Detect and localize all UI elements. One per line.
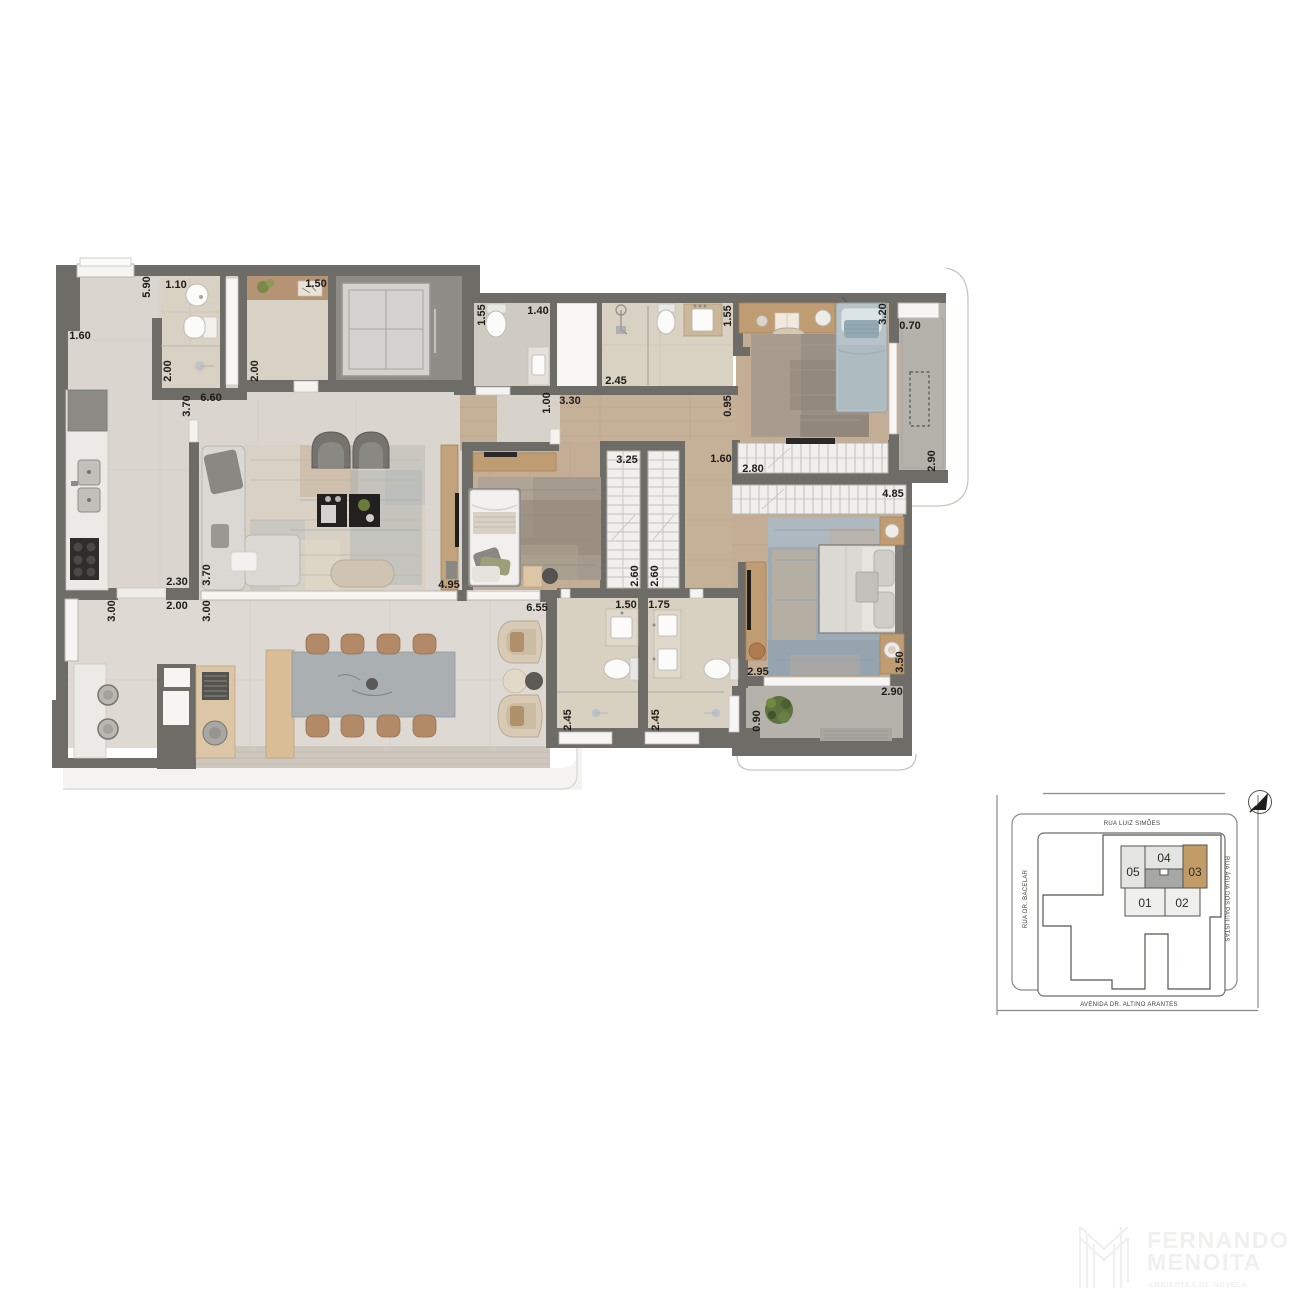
svg-text:1.50: 1.50 bbox=[305, 278, 326, 290]
svg-text:1.60: 1.60 bbox=[69, 330, 90, 342]
svg-text:2.00: 2.00 bbox=[249, 360, 261, 381]
svg-text:0.70: 0.70 bbox=[899, 320, 920, 332]
svg-text:1.55: 1.55 bbox=[476, 304, 488, 325]
svg-text:04: 04 bbox=[1157, 851, 1171, 865]
svg-text:2.45: 2.45 bbox=[605, 375, 626, 387]
svg-text:01: 01 bbox=[1138, 896, 1152, 910]
svg-text:2.80: 2.80 bbox=[742, 463, 763, 475]
svg-text:1.00: 1.00 bbox=[541, 392, 553, 413]
svg-text:3.00: 3.00 bbox=[201, 600, 213, 621]
svg-text:2.45: 2.45 bbox=[562, 709, 574, 730]
svg-text:2.95: 2.95 bbox=[747, 666, 768, 678]
svg-text:0.90: 0.90 bbox=[751, 710, 763, 731]
svg-text:6.55: 6.55 bbox=[526, 602, 547, 614]
svg-text:1.40: 1.40 bbox=[527, 305, 548, 317]
svg-text:1.75: 1.75 bbox=[648, 599, 669, 611]
svg-text:0.95: 0.95 bbox=[722, 395, 734, 416]
svg-text:1.50: 1.50 bbox=[615, 599, 636, 611]
svg-text:RUA ÁGUA DOS PAULISTAS: RUA ÁGUA DOS PAULISTAS bbox=[1223, 856, 1230, 942]
svg-text:4.95: 4.95 bbox=[438, 579, 459, 591]
svg-text:3.20: 3.20 bbox=[877, 303, 889, 324]
svg-text:2.60: 2.60 bbox=[629, 565, 641, 586]
svg-text:AMBIENTES DE NOVELA: AMBIENTES DE NOVELA bbox=[1148, 1282, 1247, 1289]
svg-text:2.90: 2.90 bbox=[926, 450, 938, 471]
svg-text:03: 03 bbox=[1188, 865, 1202, 879]
svg-text:2.60: 2.60 bbox=[649, 565, 661, 586]
svg-text:2.45: 2.45 bbox=[650, 709, 662, 730]
svg-text:1.60: 1.60 bbox=[710, 453, 731, 465]
svg-text:1.55: 1.55 bbox=[722, 305, 734, 326]
svg-text:6.60: 6.60 bbox=[200, 392, 221, 404]
svg-text:2.00: 2.00 bbox=[162, 360, 174, 381]
svg-text:1.10: 1.10 bbox=[165, 279, 186, 291]
svg-text:05: 05 bbox=[1126, 865, 1140, 879]
svg-text:2.00: 2.00 bbox=[166, 600, 187, 612]
svg-text:4.85: 4.85 bbox=[882, 488, 903, 500]
svg-text:2.90: 2.90 bbox=[881, 686, 902, 698]
svg-text:3.25: 3.25 bbox=[616, 454, 637, 466]
svg-text:3.00: 3.00 bbox=[106, 600, 118, 621]
svg-text:AVENIDA DR. ALTINO ARANTES: AVENIDA DR. ALTINO ARANTES bbox=[1080, 1002, 1178, 1008]
svg-text:3.70: 3.70 bbox=[201, 564, 213, 585]
svg-text:MENOITA: MENOITA bbox=[1147, 1249, 1262, 1275]
svg-text:02: 02 bbox=[1175, 896, 1189, 910]
svg-text:2.30: 2.30 bbox=[166, 576, 187, 588]
svg-text:3.70: 3.70 bbox=[181, 395, 193, 416]
svg-text:5.90: 5.90 bbox=[141, 276, 153, 297]
svg-text:3.50: 3.50 bbox=[894, 651, 906, 672]
svg-text:RUA DR. BACELAR: RUA DR. BACELAR bbox=[1023, 869, 1029, 928]
svg-text:RUA LUIZ SIMÕES: RUA LUIZ SIMÕES bbox=[1104, 820, 1161, 827]
svg-text:3.30: 3.30 bbox=[559, 395, 580, 407]
